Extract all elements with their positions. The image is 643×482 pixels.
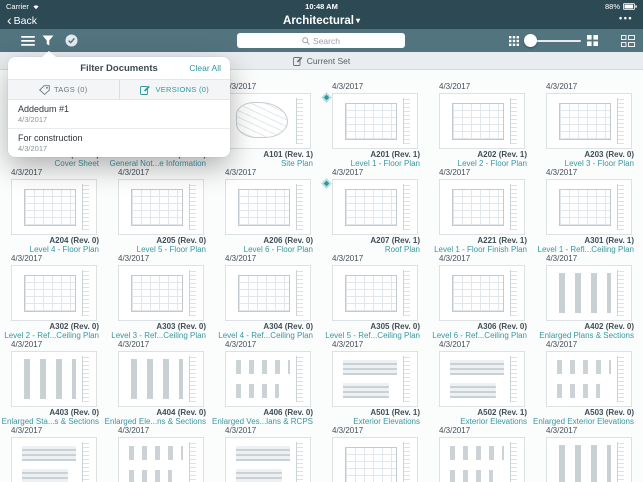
document-thumbnail[interactable] (225, 179, 311, 235)
document-cell[interactable]: 4/3/2017 (321, 424, 428, 482)
document-cell[interactable]: 4/3/2017A404 (Rev. 0)Enlarged Ele...ns &… (107, 338, 214, 424)
document-thumbnail[interactable] (118, 351, 204, 407)
document-thumbnail[interactable] (118, 179, 204, 235)
document-thumbnail[interactable] (118, 437, 204, 482)
document-thumbnail[interactable] (439, 351, 525, 407)
document-cell[interactable]: 4/3/2017A206 (Rev. 0)Level 6 - Floor Pla… (214, 166, 321, 252)
document-date: 4/3/2017 (118, 254, 214, 263)
document-date: 4/3/2017 (118, 168, 214, 177)
document-cell[interactable]: 4/3/2017A403 (Rev. 0)Enlarged Sta...s & … (0, 338, 107, 424)
document-thumbnail[interactable] (546, 179, 632, 235)
grid-small-button[interactable] (508, 29, 520, 52)
document-cell[interactable]: 4/3/2017A301 (Rev. 1)Level 1 - Refl...Ce… (535, 166, 642, 252)
filter-tab-label: TAGS (0) (54, 85, 88, 94)
carrier-label: Carrier (6, 2, 29, 11)
search-icon (302, 37, 310, 45)
document-thumbnail[interactable] (332, 179, 418, 235)
document-cell[interactable]: 4/3/2017A302 (Rev. 0)Level 2 - Ref...Cei… (0, 252, 107, 338)
document-cell[interactable]: 4/3/2017A501 (Rev. 1)Exterior Elevations (321, 338, 428, 424)
document-cell[interactable]: 4/3/2017 (428, 424, 535, 482)
document-cell[interactable]: 4/3/2017A402 (Rev. 0)Enlarged Plans & Se… (535, 252, 642, 338)
document-cell[interactable]: 4/3/2017A406 (Rev. 0)Enlarged Ves...lans… (214, 338, 321, 424)
version-date: 4/3/2017 (18, 115, 220, 124)
document-date: 4/3/2017 (225, 168, 321, 177)
document-date: 4/3/2017 (439, 82, 535, 91)
document-thumbnail[interactable] (439, 93, 525, 149)
document-thumbnail[interactable] (546, 93, 632, 149)
check-circle-icon (65, 34, 78, 47)
filter-button[interactable] (40, 29, 55, 52)
grid-large-icon (587, 35, 598, 46)
thumbnail-size-slider-knob[interactable] (524, 34, 537, 47)
document-thumbnail[interactable] (11, 351, 97, 407)
filter-popup-tabs: TAGS (0)VERSIONS (0) (8, 79, 230, 100)
sheet-list-toggle-button[interactable] (620, 29, 636, 52)
chevron-down-icon: ▾ (356, 16, 360, 25)
document-date: 4/3/2017 (332, 426, 428, 435)
document-thumbnail[interactable] (439, 437, 525, 482)
document-date: 4/3/2017 (439, 254, 535, 263)
document-cell[interactable]: 4/3/2017A201 (Rev. 1)Level 1 - Floor Pla… (321, 80, 428, 166)
document-cell[interactable]: 4/3/2017A207 (Rev. 1)Roof Plan (321, 166, 428, 252)
document-thumbnail[interactable] (225, 351, 311, 407)
filter-tab-versions[interactable]: VERSIONS (0) (120, 80, 231, 99)
battery-percent-label: 88% (605, 2, 620, 11)
search-placeholder: Search (313, 36, 340, 46)
document-thumbnail[interactable] (11, 437, 97, 482)
document-cell[interactable]: 4/3/2017A502 (Rev. 1)Exterior Elevations (428, 338, 535, 424)
document-cell[interactable]: 4/3/2017A306 (Rev. 0)Level 6 - Ref...Cei… (428, 252, 535, 338)
document-thumbnail[interactable] (546, 437, 632, 482)
grid-large-button[interactable] (586, 29, 599, 52)
document-date: 4/3/2017 (11, 426, 107, 435)
battery-icon (623, 3, 637, 10)
document-thumbnail[interactable] (546, 265, 632, 321)
document-thumbnail[interactable] (332, 437, 418, 482)
search-input[interactable]: Search (237, 33, 405, 48)
version-name: For construction (18, 133, 220, 143)
document-cell[interactable]: 4/3/2017A205 (Rev. 0)Level 5 - Floor Pla… (107, 166, 214, 252)
document-thumbnail[interactable] (546, 351, 632, 407)
document-date: 4/3/2017 (225, 254, 321, 263)
document-date: 4/3/2017 (332, 254, 428, 263)
grid-small-icon (509, 36, 519, 46)
current-set-label: Current Set (307, 56, 350, 66)
filter-version-item[interactable]: Addedum #14/3/2017 (8, 100, 230, 129)
filter-popup-header: Filter Documents Clear All (8, 57, 230, 79)
document-thumbnail[interactable] (11, 265, 97, 321)
document-date: 4/3/2017 (11, 340, 107, 349)
document-cell[interactable]: 4/3/2017 (107, 424, 214, 482)
document-date: 4/3/2017 (546, 426, 642, 435)
document-cell[interactable]: 4/3/2017A303 (Rev. 0)Level 3 - Ref...Cei… (107, 252, 214, 338)
versions-icon (140, 85, 151, 95)
document-date: 4/3/2017 (439, 426, 535, 435)
document-cell[interactable]: 4/3/2017 (0, 424, 107, 482)
document-date: 4/3/2017 (332, 340, 428, 349)
document-cell[interactable]: 4/3/2017A204 (Rev. 0)Level 4 - Floor Pla… (0, 166, 107, 252)
document-date: 4/3/2017 (225, 340, 321, 349)
new-version-badge-icon (322, 179, 332, 189)
toolbar: Search (0, 29, 643, 52)
filter-icon (42, 35, 54, 46)
filter-tab-label: VERSIONS (0) (155, 85, 209, 94)
document-cell[interactable]: 4/3/2017A221 (Rev. 1)Level 1 - Floor Fin… (428, 166, 535, 252)
wifi-icon (32, 3, 40, 10)
version-date: 4/3/2017 (18, 144, 220, 153)
overflow-menu-button[interactable]: ••• (619, 13, 633, 23)
document-date: 4/3/2017 (11, 254, 107, 263)
document-date: 4/3/2017 (118, 426, 214, 435)
clock-label: 10:48 AM (305, 2, 338, 11)
document-thumbnail[interactable] (225, 93, 311, 149)
document-date: 4/3/2017 (225, 82, 321, 91)
document-date: 4/3/2017 (546, 254, 642, 263)
document-thumbnail[interactable] (225, 265, 311, 321)
document-thumbnail[interactable] (225, 437, 311, 482)
filter-tab-tags[interactable]: TAGS (0) (8, 80, 120, 99)
document-cell[interactable]: 4/3/2017A101 (Rev. 1)Site Plan (214, 80, 321, 166)
navigation-bar: ‹ Back Architectural▾ ••• (0, 12, 643, 29)
document-cell[interactable]: 4/3/2017A202 (Rev. 1)Level 2 - Floor Pla… (428, 80, 535, 166)
document-thumbnail[interactable] (332, 93, 418, 149)
select-button[interactable] (64, 29, 79, 52)
document-cell[interactable]: 4/3/2017A304 (Rev. 0)Level 4 - Ref...Cei… (214, 252, 321, 338)
document-thumbnail[interactable] (118, 265, 204, 321)
document-date: 4/3/2017 (439, 340, 535, 349)
document-date: 4/3/2017 (546, 168, 642, 177)
document-cell[interactable]: 4/3/2017A203 (Rev. 0)Level 3 - Floor Pla… (535, 80, 642, 166)
document-thumbnail[interactable] (332, 265, 418, 321)
clear-all-button[interactable]: Clear All (189, 63, 221, 73)
document-date: 4/3/2017 (546, 82, 642, 91)
folder-title-dropdown[interactable]: Architectural▾ (0, 15, 643, 27)
menu-icon (21, 36, 35, 46)
document-thumbnail[interactable] (439, 265, 525, 321)
document-date: 4/3/2017 (439, 168, 535, 177)
document-date: 4/3/2017 (332, 168, 428, 177)
document-thumbnail[interactable] (11, 179, 97, 235)
document-cell[interactable]: 4/3/2017 (214, 424, 321, 482)
menu-button[interactable] (19, 29, 36, 52)
tag-icon (39, 85, 50, 95)
filter-version-item[interactable]: For construction4/3/2017 (8, 129, 230, 157)
page-title: Architectural (283, 15, 354, 27)
version-name: Addedum #1 (18, 104, 220, 114)
document-thumbnail[interactable] (332, 351, 418, 407)
status-bar: Carrier 10:48 AM 88% (0, 0, 643, 12)
new-version-badge-icon (322, 93, 332, 103)
document-cell[interactable]: 4/3/2017 (535, 424, 642, 482)
current-set-icon (293, 56, 303, 66)
filter-popup: Filter Documents Clear All TAGS (0)VERSI… (8, 57, 230, 157)
document-thumbnail[interactable] (439, 179, 525, 235)
sheet-list-icon (621, 35, 635, 47)
document-date: 4/3/2017 (546, 340, 642, 349)
document-date: 4/3/2017 (332, 82, 428, 91)
document-date: 4/3/2017 (225, 426, 321, 435)
app-screen: Carrier 10:48 AM 88% ‹ Back Architectura… (0, 0, 643, 482)
document-date: 4/3/2017 (118, 340, 214, 349)
document-cell[interactable]: 4/3/2017A503 (Rev. 0)Enlarged Exterior E… (535, 338, 642, 424)
document-date: 4/3/2017 (11, 168, 107, 177)
document-cell[interactable]: 4/3/2017A305 (Rev. 0)Level 5 - Ref...Cei… (321, 252, 428, 338)
filter-popup-item-list: Addedum #14/3/2017For construction4/3/20… (8, 100, 230, 157)
